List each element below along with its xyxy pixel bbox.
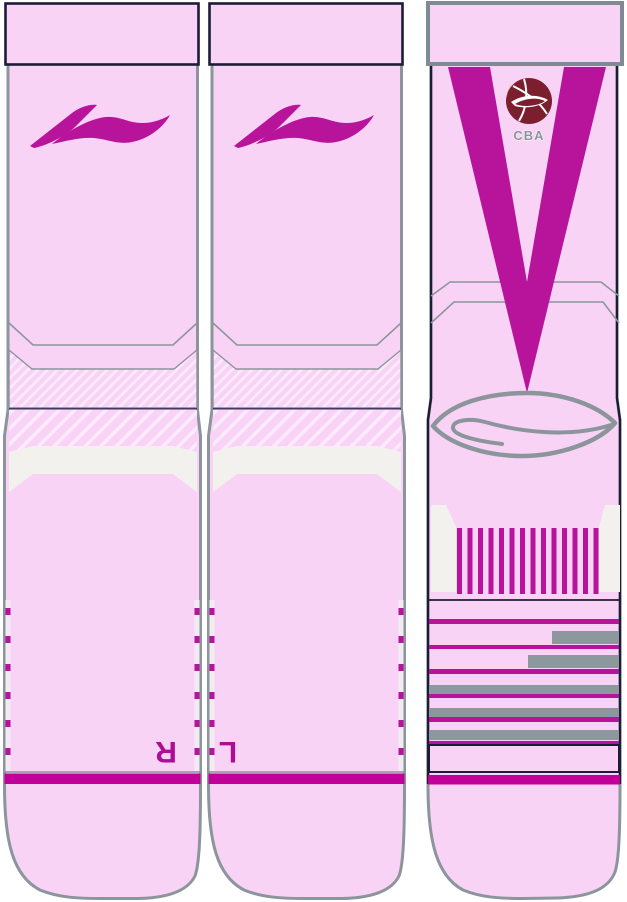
- hatch-band-lower: [9, 410, 197, 452]
- heel-box: [429, 745, 619, 772]
- toe-band: [209, 774, 405, 785]
- toe-band: [428, 775, 620, 785]
- edge-stitch-left: [210, 600, 215, 771]
- sock-body: [428, 64, 620, 899]
- toe-band: [5, 774, 201, 785]
- edge-stitch-right: [399, 600, 404, 771]
- cuff: [428, 3, 622, 64]
- sock-body: [209, 64, 405, 899]
- sole-letter: L: [219, 735, 237, 768]
- cuff: [6, 4, 199, 65]
- sock-back-view: CBA: [425, 0, 627, 902]
- sock-body: [5, 64, 201, 899]
- design-sheet: R: [0, 0, 627, 902]
- cba-logo-icon: [506, 78, 552, 124]
- sole-letter: R: [155, 735, 177, 768]
- edge-stitch-left: [6, 600, 11, 771]
- sock-front-left-foot: L: [204, 0, 409, 902]
- hatch-band-lower: [213, 410, 401, 452]
- cuff: [210, 4, 403, 65]
- heel-panel-right: [599, 505, 620, 592]
- cba-label: CBA: [513, 128, 544, 143]
- edge-stitch-right: [195, 600, 200, 771]
- sock-front-right-foot: R: [0, 0, 205, 902]
